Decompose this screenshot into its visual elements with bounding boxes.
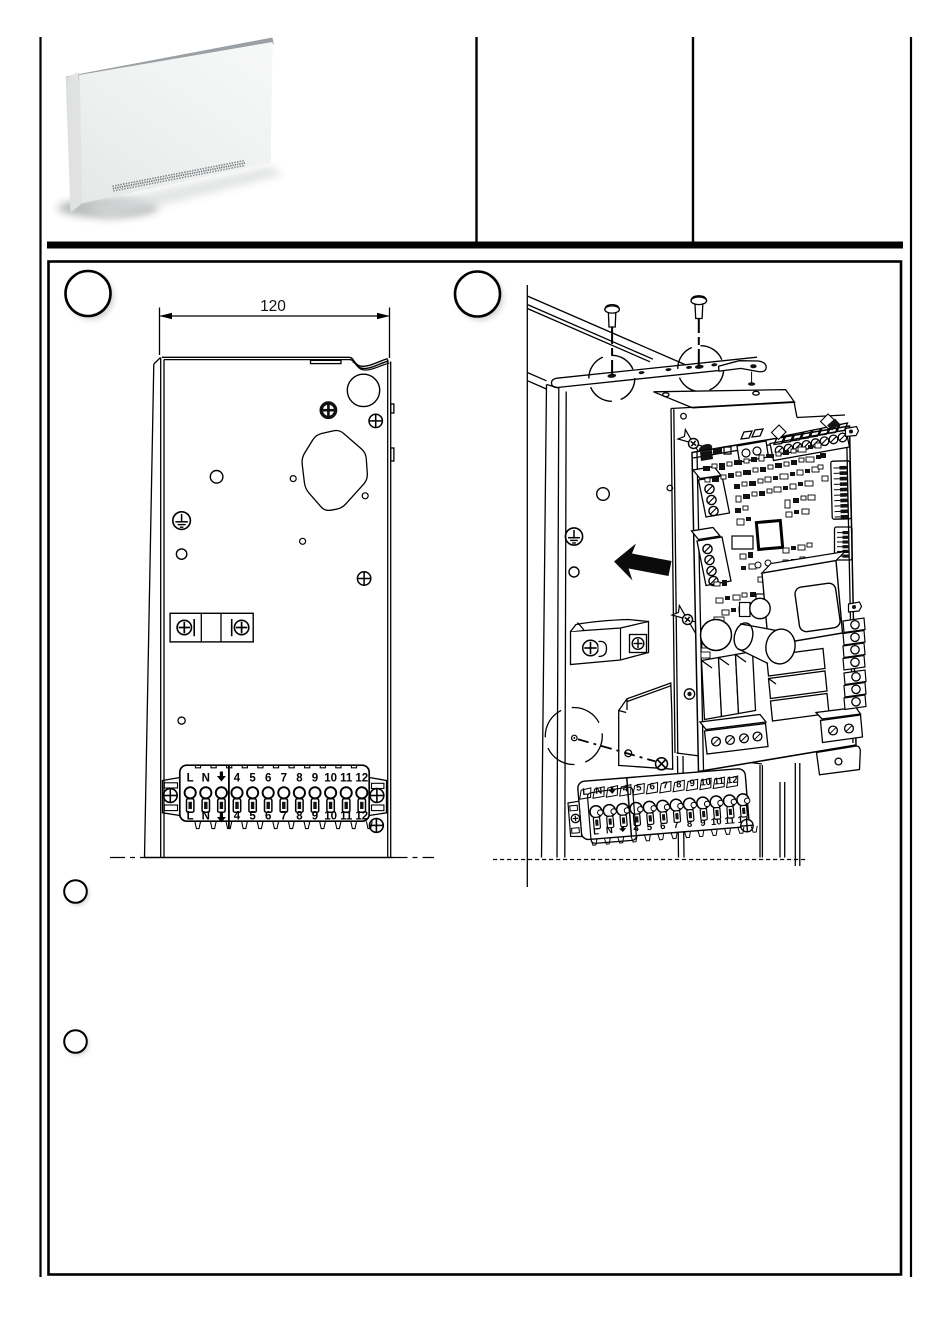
svg-text:4: 4	[234, 772, 241, 784]
svg-text:9: 9	[312, 772, 318, 784]
svg-text:12: 12	[355, 772, 368, 784]
svg-text:11: 11	[713, 776, 725, 788]
svg-text:9: 9	[689, 778, 695, 789]
svg-text:N: N	[202, 772, 210, 784]
svg-text:10: 10	[700, 777, 712, 789]
svg-text:6: 6	[649, 781, 655, 792]
svg-text:5: 5	[249, 772, 256, 784]
svg-text:8: 8	[296, 772, 303, 784]
svg-text:7: 7	[281, 772, 287, 784]
svg-text:6: 6	[265, 772, 271, 784]
svg-text:120: 120	[260, 298, 286, 315]
svg-text:12: 12	[727, 775, 739, 787]
svg-text:10: 10	[324, 772, 337, 784]
svg-text:7: 7	[662, 780, 668, 791]
svg-text:11: 11	[340, 772, 353, 784]
svg-text:L: L	[187, 772, 194, 784]
